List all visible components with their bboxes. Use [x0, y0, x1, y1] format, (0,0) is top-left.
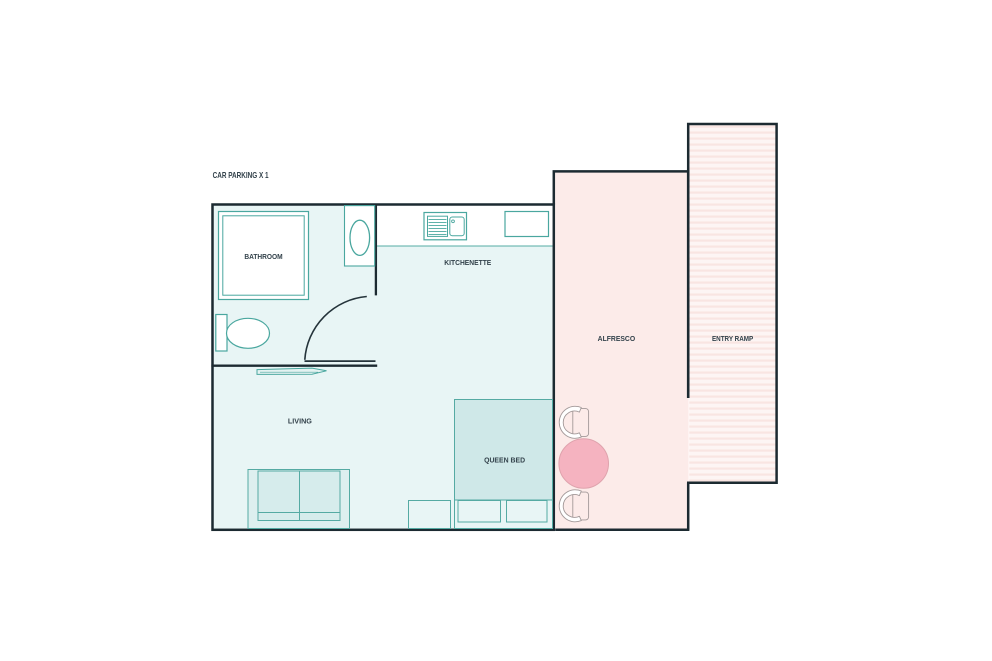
svg-text:KITCHENETTE: KITCHENETTE [444, 258, 491, 267]
svg-text:CAR PARKING X 1: CAR PARKING X 1 [213, 170, 269, 180]
svg-text:LIVING: LIVING [288, 417, 312, 426]
svg-text:ALFRESCO: ALFRESCO [598, 334, 636, 343]
svg-text:ENTRY RAMP: ENTRY RAMP [712, 334, 753, 343]
svg-text:QUEEN BED: QUEEN BED [484, 456, 526, 465]
svg-text:BATHROOM: BATHROOM [244, 252, 282, 261]
